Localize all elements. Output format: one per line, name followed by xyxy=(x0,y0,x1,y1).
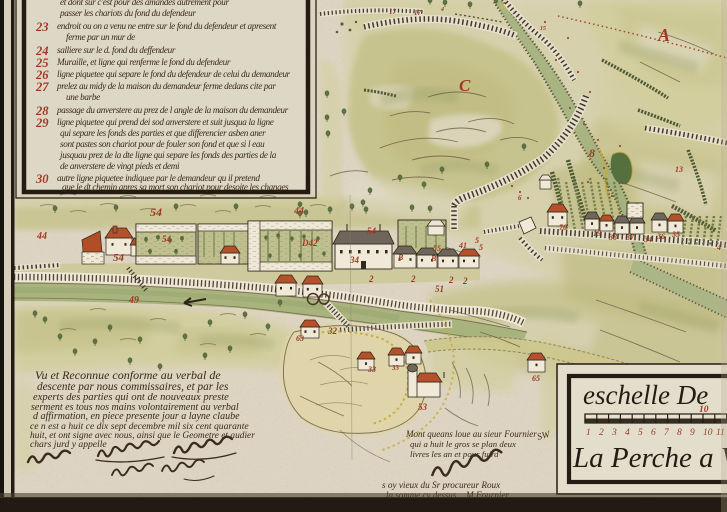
svg-text:23: 23 xyxy=(35,20,49,34)
svg-text:eschelle De: eschelle De xyxy=(583,380,708,410)
svg-text:51: 51 xyxy=(435,284,444,294)
svg-text:que le dt chemin apres sa mort: que le dt chemin apres sa mort son chari… xyxy=(62,182,289,192)
svg-text:70: 70 xyxy=(559,223,567,232)
svg-text:9: 9 xyxy=(690,428,695,438)
svg-text:32: 32 xyxy=(327,326,338,336)
svg-text:D42: D42 xyxy=(301,238,318,248)
svg-text:38: 38 xyxy=(608,233,617,242)
svg-text:37: 37 xyxy=(625,233,635,242)
svg-text:Muraille, et ligne qui renferm: Muraille, et ligne qui renferme le fond … xyxy=(56,57,231,67)
svg-text:17: 17 xyxy=(389,8,397,16)
svg-text:54: 54 xyxy=(367,226,377,236)
svg-text:Vu et Reconnue conforme au ver: Vu et Reconnue conforme au verbal de xyxy=(35,368,221,382)
svg-text:ligne piquetee qui separe le f: ligne piquetee qui separe le fond du def… xyxy=(57,69,291,79)
svg-text:salliere sur le d. fond du def: salliere sur le d. fond du deffendeur xyxy=(57,45,176,55)
svg-text:passage du anverstere au prez: passage du anverstere au prez de l angle… xyxy=(56,105,289,115)
svg-text:8: 8 xyxy=(589,146,595,160)
svg-text:54: 54 xyxy=(150,205,162,219)
svg-text:de anverstere de vingt pieds e: de anverstere de vingt pieds et demi xyxy=(60,161,180,171)
svg-text:C: C xyxy=(459,76,471,95)
svg-text:B: B xyxy=(430,254,437,263)
svg-text:27: 27 xyxy=(35,80,49,94)
svg-text:44: 44 xyxy=(36,231,47,242)
svg-text:ligne piquetee qui prend dei s: ligne piquetee qui prend dei sod anverst… xyxy=(57,117,274,127)
svg-text:livres les an et pour fuird: livres les an et pour fuird xyxy=(410,449,499,459)
svg-text:19: 19 xyxy=(593,229,601,238)
svg-text:5: 5 xyxy=(638,428,643,438)
svg-text:1: 1 xyxy=(586,428,591,438)
svg-text:2: 2 xyxy=(462,276,468,286)
svg-text:sont pastes son chariot pour d: sont pastes son chariot pour de fouler s… xyxy=(60,139,265,149)
svg-text:5: 5 xyxy=(479,243,483,252)
svg-text:49: 49 xyxy=(128,295,139,306)
svg-text:qui separe les fonds des parti: qui separe les fonds des parties et que … xyxy=(60,128,266,138)
svg-text:une barbe: une barbe xyxy=(66,92,100,102)
svg-text:A: A xyxy=(657,25,670,45)
svg-text:53: 53 xyxy=(418,402,428,412)
svg-text:3: 3 xyxy=(611,428,617,438)
svg-text:4: 4 xyxy=(716,243,721,252)
svg-text:55: 55 xyxy=(433,244,441,253)
svg-text:33: 33 xyxy=(367,365,376,374)
svg-text:La Perche a Vi: La Perche a Vi xyxy=(572,442,727,474)
svg-text:8: 8 xyxy=(677,428,682,438)
svg-text:15: 15 xyxy=(540,26,546,32)
svg-text:2: 2 xyxy=(599,428,604,438)
svg-text:65: 65 xyxy=(532,374,540,383)
svg-text:29: 29 xyxy=(35,116,49,130)
svg-text:30: 30 xyxy=(35,172,49,186)
svg-text:prelez au midy de la maison du: prelez au midy de la maison du demandeur… xyxy=(56,81,276,91)
svg-text:endroit ou on a venu ne entre: endroit ou on a venu ne entre sur le fon… xyxy=(57,21,277,31)
svg-text:34: 34 xyxy=(643,235,652,244)
svg-text:10: 10 xyxy=(703,428,713,438)
svg-text:4: 4 xyxy=(440,7,444,13)
svg-text:33: 33 xyxy=(391,364,400,372)
svg-text:et dont sur c'est pour des ama: et dont sur c'est pour des amandes autre… xyxy=(60,0,229,7)
svg-text:17: 17 xyxy=(414,9,422,17)
svg-text:passer les chariots du fond du: passer les chariots du fond du defendeur xyxy=(59,8,196,18)
svg-text:54: 54 xyxy=(162,234,172,244)
svg-text:10: 10 xyxy=(699,405,709,415)
svg-text:63: 63 xyxy=(296,334,304,343)
svg-text:2: 2 xyxy=(448,275,454,285)
svg-text:44: 44 xyxy=(293,206,304,217)
svg-text:jusquau prez de la dte ligne q: jusquau prez de la dte ligne qui separe … xyxy=(59,150,277,160)
svg-text:ferme par un mur de: ferme par un mur de xyxy=(66,32,135,42)
svg-text:6: 6 xyxy=(518,194,522,202)
svg-text:35: 35 xyxy=(671,230,680,239)
svg-text:41: 41 xyxy=(458,241,467,250)
svg-text:36: 36 xyxy=(656,232,665,241)
svg-text:2: 2 xyxy=(368,274,374,284)
svg-text:4: 4 xyxy=(625,428,630,438)
svg-text:54: 54 xyxy=(113,252,125,264)
svg-text:Mont queans loue au sieur Four: Mont queans loue au sieur Fournier xyxy=(405,429,537,439)
svg-text:qui a huit le gros se plan deu: qui a huit le gros se plan deux xyxy=(410,439,516,449)
svg-text:2: 2 xyxy=(410,274,416,284)
svg-text:B: B xyxy=(397,253,404,262)
svg-text:6: 6 xyxy=(651,428,656,438)
svg-text:13: 13 xyxy=(675,165,683,174)
svg-text:s oy vieux du Sr procureur Rou: s oy vieux du Sr procureur Roux xyxy=(382,480,501,490)
svg-text:chars jurd y appelle: chars jurd y appelle xyxy=(30,439,107,450)
